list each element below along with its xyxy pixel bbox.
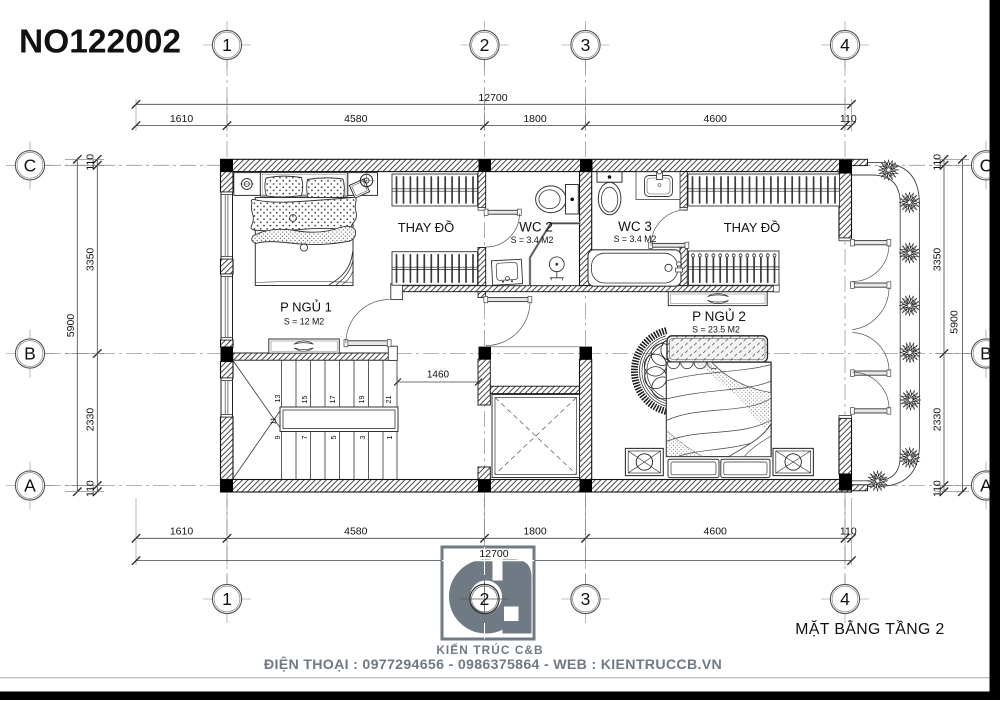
svg-text:1800: 1800	[523, 526, 547, 538]
svg-text:15: 15	[300, 396, 309, 404]
svg-text:7: 7	[300, 436, 309, 440]
svg-text:S = 3.4 M2: S = 3.4 M2	[614, 234, 657, 244]
svg-text:19: 19	[357, 396, 366, 404]
svg-text:110: 110	[840, 113, 857, 125]
svg-text:2: 2	[480, 35, 490, 55]
svg-text:3350: 3350	[931, 248, 943, 272]
svg-text:110: 110	[85, 480, 97, 497]
svg-text:1: 1	[222, 35, 232, 55]
svg-text:3: 3	[358, 436, 367, 440]
svg-text:2: 2	[480, 589, 490, 609]
svg-text:S = 23.5 M2: S = 23.5 M2	[692, 325, 740, 335]
svg-text:110: 110	[931, 154, 943, 171]
svg-text:4580: 4580	[344, 113, 368, 125]
svg-text:110: 110	[85, 154, 97, 171]
svg-text:THAY ĐỒ: THAY ĐỒ	[724, 220, 781, 235]
svg-text:1: 1	[222, 589, 232, 609]
svg-text:WC 2: WC 2	[519, 220, 553, 235]
svg-text:5900: 5900	[949, 310, 961, 334]
svg-text:S = 12 M2: S = 12 M2	[284, 317, 324, 327]
svg-text:4600: 4600	[704, 113, 728, 125]
svg-text:4580: 4580	[344, 526, 368, 538]
svg-text:12700: 12700	[479, 548, 508, 560]
svg-text:1610: 1610	[170, 113, 194, 125]
svg-text:5: 5	[329, 436, 338, 440]
svg-text:11: 11	[269, 417, 278, 424]
svg-text:3: 3	[581, 35, 591, 55]
svg-text:1610: 1610	[170, 526, 194, 538]
svg-text:NO122002: NO122002	[19, 24, 181, 61]
svg-text:P NGỦ 1: P NGỦ 1	[280, 300, 332, 315]
svg-text:13: 13	[273, 395, 282, 403]
svg-text:S = 3.4 M2: S = 3.4 M2	[511, 235, 554, 245]
svg-text:1460: 1460	[427, 370, 450, 381]
svg-text:1800: 1800	[523, 113, 547, 125]
svg-text:3350: 3350	[85, 248, 97, 272]
svg-text:12700: 12700	[478, 92, 507, 104]
svg-text:C: C	[24, 156, 37, 176]
svg-text:2330: 2330	[931, 408, 943, 432]
svg-text:110: 110	[840, 526, 857, 538]
svg-text:WC 3: WC 3	[618, 219, 652, 234]
svg-text:4: 4	[840, 35, 850, 55]
svg-text:110: 110	[931, 480, 943, 497]
svg-text:21: 21	[384, 396, 393, 404]
svg-text:P NGỦ 2: P NGỦ 2	[692, 309, 746, 324]
svg-text:ĐIỆN THOẠI : 0977294656 - 0986: ĐIỆN THOẠI : 0977294656 - 0986375864 - W…	[264, 655, 722, 673]
svg-text:1: 1	[385, 436, 394, 440]
svg-text:KIẾN TRÚC C&B: KIẾN TRÚC C&B	[436, 643, 543, 657]
svg-text:17: 17	[328, 396, 337, 404]
svg-text:5900: 5900	[65, 314, 77, 338]
svg-text:4: 4	[840, 589, 850, 609]
svg-text:THAY ĐỒ: THAY ĐỒ	[398, 220, 455, 235]
svg-text:9: 9	[273, 436, 282, 440]
svg-text:A: A	[24, 476, 36, 496]
svg-text:MẶT BẰNG TẦNG 2: MẶT BẰNG TẦNG 2	[795, 619, 944, 638]
svg-text:B: B	[24, 344, 36, 364]
svg-text:3: 3	[581, 589, 591, 609]
svg-text:2330: 2330	[85, 408, 97, 432]
svg-text:4600: 4600	[704, 526, 728, 538]
